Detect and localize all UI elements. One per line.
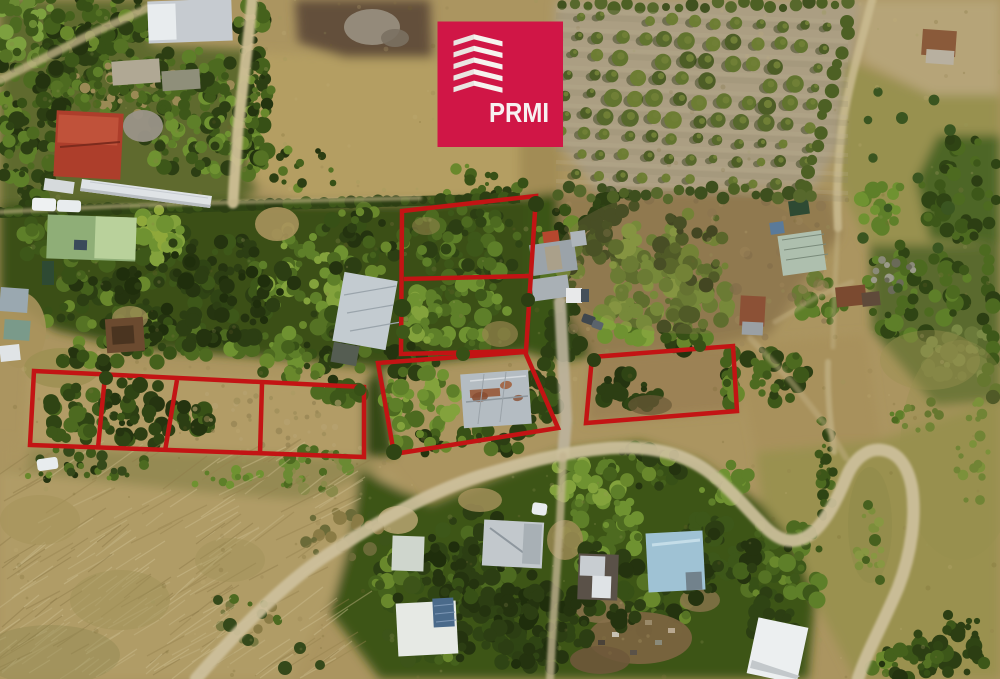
- svg-text:PRMI: PRMI: [489, 97, 549, 128]
